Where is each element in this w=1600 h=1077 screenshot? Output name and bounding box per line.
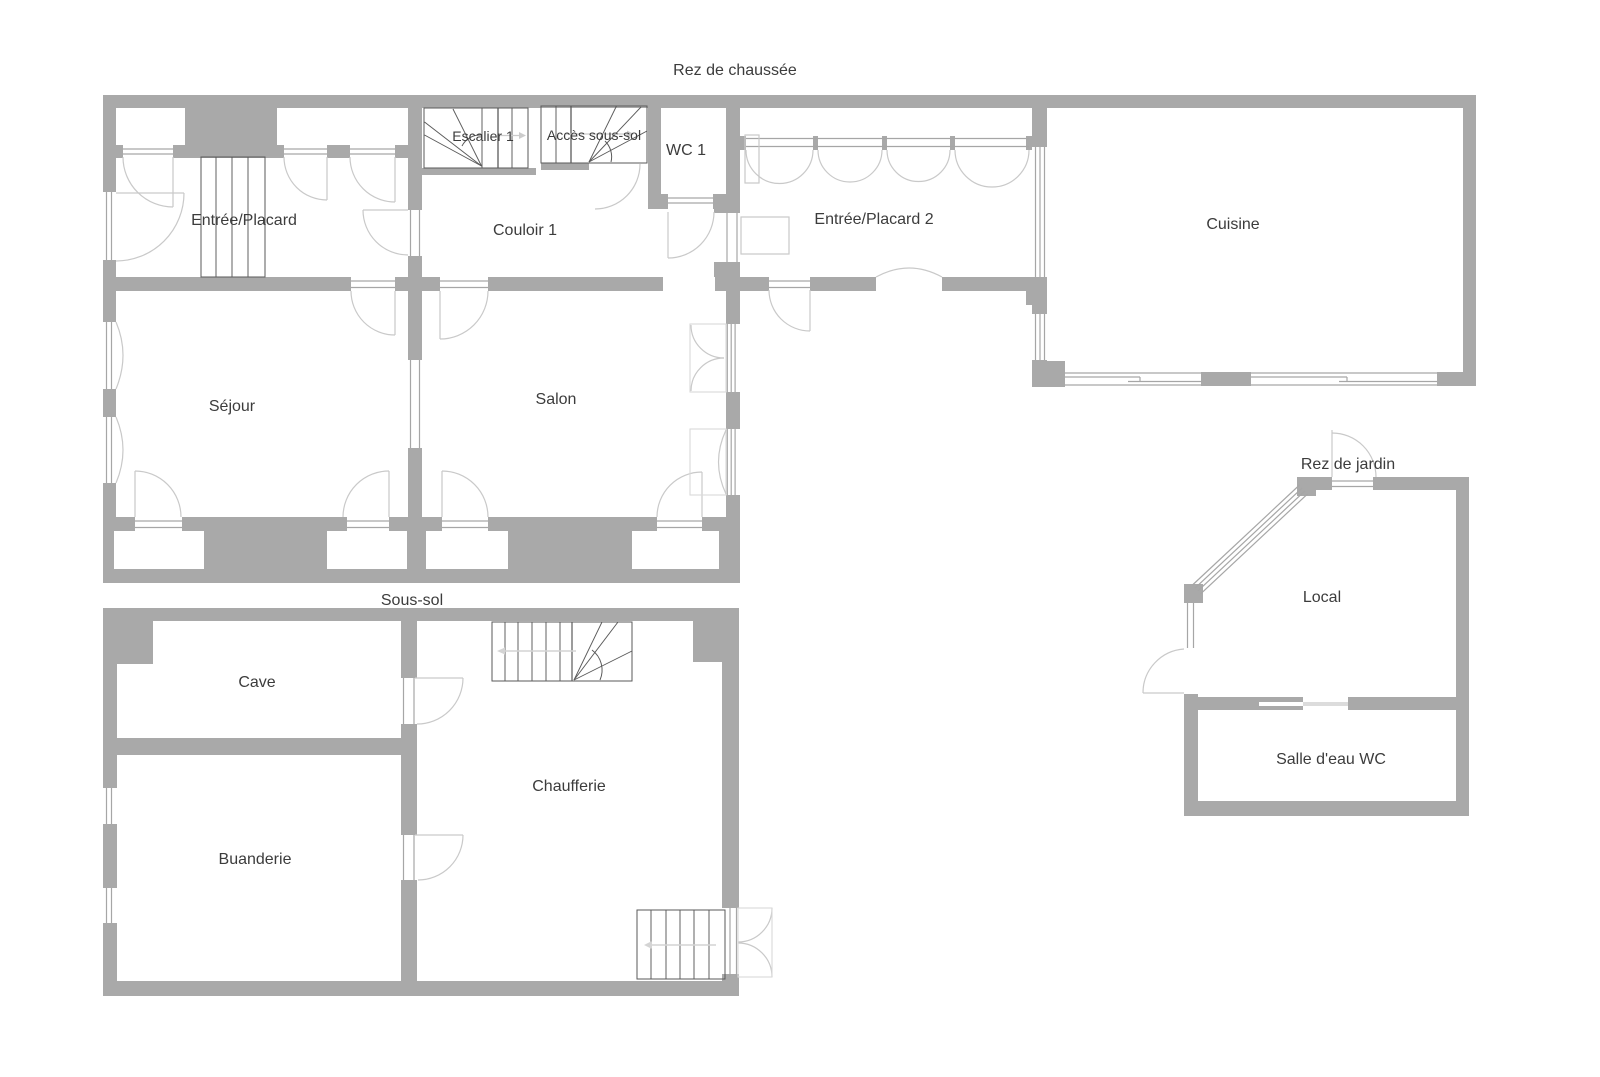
svg-text:Rez de jardin: Rez de jardin xyxy=(1301,456,1395,473)
svg-text:Salle d'eau WC: Salle d'eau WC xyxy=(1276,751,1386,768)
svg-text:Accès sous-sol: Accès sous-sol xyxy=(547,127,641,143)
svg-text:Couloir 1: Couloir 1 xyxy=(493,222,557,239)
svg-text:Chaufferie: Chaufferie xyxy=(532,778,606,795)
svg-text:Buanderie: Buanderie xyxy=(219,851,292,868)
svg-text:Cuisine: Cuisine xyxy=(1206,216,1259,233)
svg-text:Salon: Salon xyxy=(536,391,577,408)
svg-text:Local: Local xyxy=(1303,589,1341,606)
svg-text:Sous-sol: Sous-sol xyxy=(381,592,443,609)
svg-text:Séjour: Séjour xyxy=(209,398,256,415)
svg-text:WC 1: WC 1 xyxy=(666,142,706,159)
svg-text:Entrée/Placard 2: Entrée/Placard 2 xyxy=(814,211,933,228)
svg-text:Cave: Cave xyxy=(238,674,275,691)
svg-text:Entrée/Placard: Entrée/Placard xyxy=(191,212,297,229)
svg-text:Escalier 1: Escalier 1 xyxy=(452,128,514,144)
svg-text:Rez de chaussée: Rez de chaussée xyxy=(673,62,797,79)
